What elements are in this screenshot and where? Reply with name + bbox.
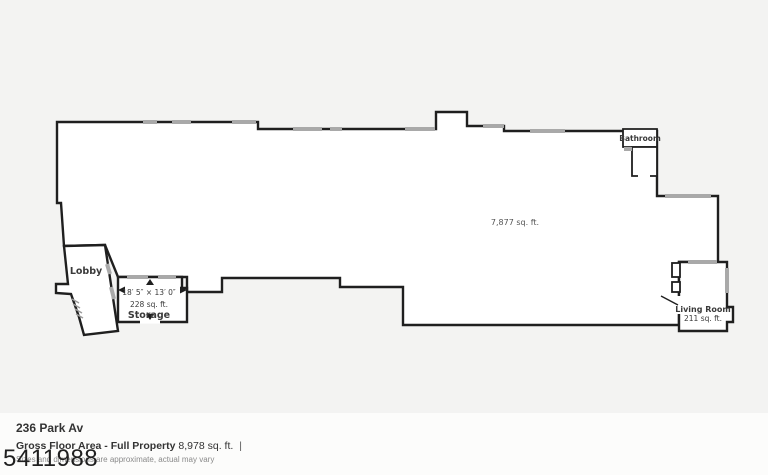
lobby-room [56, 245, 118, 335]
storage-label: Storage [128, 310, 170, 321]
storage-dimensions: 18′ 5″ × 13′ 0″ [122, 288, 176, 297]
living-room-area: 211 sq. ft. [684, 314, 722, 323]
bathroom-label: Bathroom [619, 134, 661, 143]
listing-id-watermark: 5411988 [3, 445, 98, 473]
bathroom-room [632, 147, 657, 176]
living-room-label: Living Room [675, 305, 731, 314]
disclaimer-text: Sizes and dimensions are approximate, ac… [16, 455, 768, 464]
closet [672, 282, 680, 292]
closet [672, 263, 680, 277]
bathroom-fixture [624, 147, 632, 151]
gross-floor-area-value: 8,978 sq. ft. [178, 440, 233, 452]
main-area-label: 7,877 sq. ft. [491, 218, 539, 227]
separator-bar: | [239, 440, 242, 452]
lobby-label: Lobby [70, 266, 103, 277]
storage-area: 228 sq. ft. [130, 300, 168, 309]
gross-floor-area-line: Gross Floor Area - Full Property 8,978 s… [16, 440, 768, 452]
property-address: 236 Park Av [16, 421, 768, 435]
floor-plan: Bathroom 7,877 sq. ft. Lobby 18′ 5″ × 13… [0, 0, 768, 475]
info-panel: 236 Park Av Gross Floor Area - Full Prop… [0, 413, 768, 475]
